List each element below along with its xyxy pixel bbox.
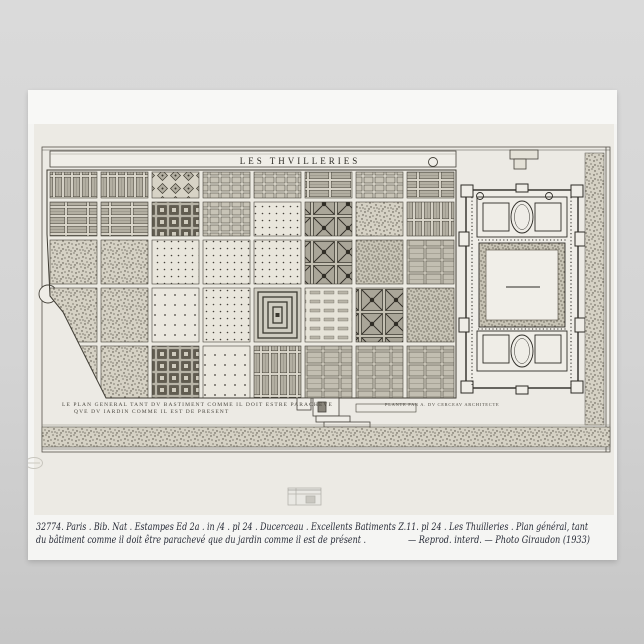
sketch-fragment — [288, 488, 321, 505]
parterre-2-0-stipple — [50, 240, 97, 284]
parterre-1-3-cells — [203, 202, 250, 236]
garden-plan — [39, 170, 456, 398]
moat-band — [585, 153, 604, 425]
parterre-1-1-hbeds — [101, 202, 148, 236]
parterre-1-0-hbeds — [50, 202, 97, 236]
parterre-3-7-stipple2 — [407, 288, 454, 342]
paper-top-band — [28, 90, 617, 124]
river-band — [42, 425, 610, 447]
parterre-2-3-dots — [203, 240, 250, 284]
plate-caption-line2: QVE DV IARDIN COMME IL EST DE PRESENT — [74, 409, 229, 415]
parterre-0-6-cells — [356, 172, 403, 198]
terrace-tower — [429, 158, 438, 167]
palace-central-court — [479, 243, 565, 327]
parterre-4-1-stipple — [101, 346, 148, 398]
parterre-2-5-knotx — [305, 240, 352, 284]
parterre-2-2-dots — [152, 240, 199, 284]
parterre-0-2-fancy — [152, 172, 199, 198]
parterre-0-1-vbeds — [101, 172, 148, 198]
parterre-4-2-knot — [152, 346, 199, 398]
parterre-1-6-stipple — [356, 202, 403, 236]
parterre-1-2-knot — [152, 202, 199, 236]
parterre-0-4-cells — [254, 172, 301, 198]
parterre-labyrinth — [254, 288, 301, 342]
parterre-4-6-gridbeds — [356, 346, 403, 398]
parterre-3-1-stipple — [101, 288, 148, 342]
plate-caption-line1: LE PLAN GENERAL TANT DV BASTIMENT COMME … — [62, 402, 333, 408]
parterre-2-7-gridbeds — [407, 240, 454, 284]
parterre-1-7-vbeds — [407, 202, 454, 236]
plate-caption-right: PLANTE PAR A. DV CERCEAV ARCHITECTE — [385, 402, 499, 407]
parterre-2-6-stipple2 — [356, 240, 403, 284]
plate-title: LES THVILLERIES — [240, 156, 361, 166]
handwritten-caption-line2-right: — Reprod. interd. — Photo Giraudon (1933… — [408, 535, 590, 546]
photo-background: LES THVILLERIES — [0, 0, 644, 644]
handwritten-caption-line1: 32774. Paris . Bib. Nat . Estampes Ed 2a… — [36, 522, 589, 533]
parterre-3-6-knotx — [356, 288, 403, 342]
parterre-4-3-dots2 — [203, 346, 250, 398]
parterre-4-4-vbeds — [254, 346, 301, 398]
palace-plan — [459, 184, 585, 394]
poster: LES THVILLERIES — [28, 90, 617, 560]
parterre-4-7-gridbeds — [407, 346, 454, 398]
engraving-plan: LES THVILLERIES — [28, 90, 617, 560]
parterre-1-4-dots — [254, 202, 301, 236]
parterre-2-4-dots — [254, 240, 301, 284]
parterre-3-3-dots — [203, 288, 250, 342]
north-terrace: LES THVILLERIES — [50, 151, 456, 167]
parterre-2-1-stipple — [101, 240, 148, 284]
parterre-0-5-hbeds — [305, 172, 352, 198]
parterre-0-3-cells — [203, 172, 250, 198]
handwritten-caption-line2-left: du bâtiment comme il doit être parachevé… — [36, 535, 366, 546]
parterre-4-5-gridbeds — [305, 346, 352, 398]
parterre-0-7-hbeds — [407, 172, 454, 198]
parterre-3-2-dots2 — [152, 288, 199, 342]
parterre-0-0-vbeds — [50, 172, 97, 198]
parterre-1-5-knotx — [305, 202, 352, 236]
parterre-3-5-nursery — [305, 288, 352, 342]
